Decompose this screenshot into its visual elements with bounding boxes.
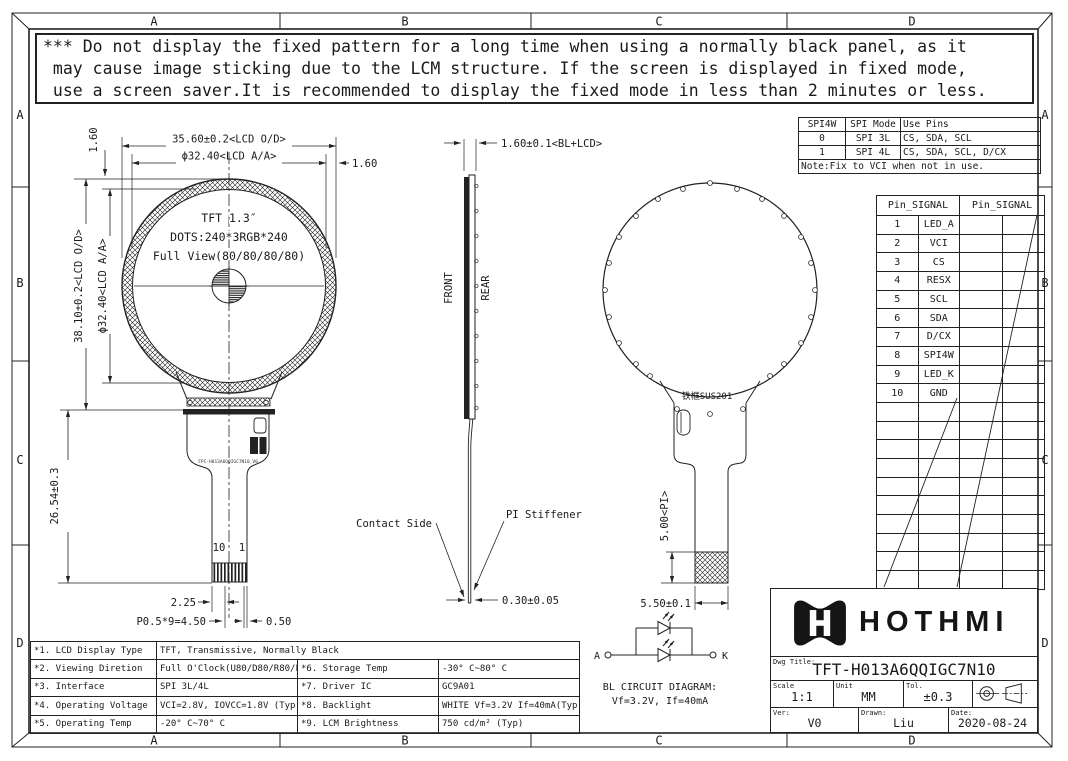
pi-stiffener-label: PI Stiffener: [506, 509, 582, 521]
spi-cell: CS, SDA, SCL: [901, 132, 1041, 146]
scale-label: Scale: [773, 682, 794, 690]
bl-circuit-diagram: A K BL CIRCUIT DIAGRAM: Vf=3.2V, If=40mA: [594, 612, 728, 707]
zone-top-d: D: [908, 15, 915, 29]
hothmi-logo-icon: [791, 598, 849, 648]
unit-label: Unit: [836, 682, 853, 690]
spi-cell: SPI 3L: [846, 132, 901, 146]
backlight-profile: [469, 175, 475, 419]
led-symbols: [658, 612, 674, 662]
pin-signal: GND: [918, 384, 960, 403]
panel-view-label: Full View(80/80/80/80): [153, 249, 305, 263]
fpc-component-outline: [254, 418, 266, 433]
empty-cell: [1002, 458, 1045, 477]
pin-signal: RESX: [918, 272, 960, 291]
empty-cell: [1002, 384, 1045, 403]
spec-value: TFT, Transmissive, Normally Black: [157, 642, 580, 660]
spec-label: *2. Viewing Diretion: [31, 660, 157, 678]
fpc-component-1: [250, 437, 258, 454]
empty-cell: [960, 533, 1003, 552]
empty-cell: [960, 440, 1003, 459]
spec-label: *9. LCM Brightness: [298, 715, 439, 733]
dwg-title-label: Dwg Title:: [773, 658, 815, 666]
empty-cell: [918, 496, 960, 515]
zone-bottom-a: A: [150, 734, 158, 748]
zone-left-b: B: [16, 276, 23, 290]
dim-thickness: 1.60±0.1<BL+LCD>: [501, 138, 602, 150]
empty-cell: [1002, 533, 1045, 552]
empty-cell: [960, 421, 1003, 440]
empty-cell: [960, 384, 1003, 403]
dim-pin-pitch: P0.5*9=4.50: [136, 616, 206, 628]
pin-10-label: 10: [213, 542, 226, 554]
spi-col-header: SPI Mode: [846, 118, 901, 132]
zone-bottom-c: C: [655, 734, 662, 748]
spec-value: WHITE Vf=3.2V If=40mA(Typ): [439, 697, 580, 715]
spec-value: GC9A01: [439, 678, 580, 696]
empty-cell: [877, 533, 919, 552]
spec-label: *8. Backlight: [298, 697, 439, 715]
dim-pi: 5.00<PI>: [659, 491, 671, 542]
empty-cell: [877, 496, 919, 515]
empty-cell: [877, 477, 919, 496]
scale-unit-tol-row: Scale 1:1 Unit MM Tol. ±0.3: [771, 681, 1037, 708]
dim-height-aa: ϕ32.40<LCD A/A>: [97, 239, 109, 334]
spi-note: Note:Fix to VCI when not in use.: [799, 160, 1041, 174]
spec-label: *1. LCD Display Type: [31, 642, 157, 660]
dim-fpc-thickness: 0.30±0.05: [502, 595, 559, 607]
pi-stiffener-hatch: [695, 552, 728, 583]
dim-width-od: 35.60±0.2<LCD O/D>: [172, 134, 286, 146]
empty-cell: [960, 234, 1003, 253]
empty-cell: [1002, 571, 1045, 590]
center-mark: [209, 266, 249, 306]
drawn-label: Drawn:: [861, 709, 886, 717]
panel-dots-label: DOTS:240*3RGB*240: [170, 230, 288, 244]
pin-signal: D/CX: [918, 328, 960, 347]
spec-value: VCI=2.8V, IOVCC=1.8V (Typ): [157, 697, 298, 715]
empty-cell: [918, 552, 960, 571]
zone-top-b: B: [401, 15, 408, 29]
pin-signal: LED_A: [918, 216, 960, 235]
spi-cell: SPI 4L: [846, 146, 901, 160]
contact-side-label: Contact Side: [356, 518, 432, 530]
date-cell: Date: 2020-08-24: [949, 708, 1036, 733]
empty-cell: [918, 515, 960, 534]
spec-value: -30° C~80° C: [439, 660, 580, 678]
front-view: 35.60±0.2<LCD O/D> ϕ32.40<LCD A/A> 1.60 …: [49, 127, 377, 628]
empty-cell: [1002, 402, 1045, 421]
empty-cell: [877, 458, 919, 477]
ver-drawn-date-row: Ver: V0 Drawn: Liu Date: 2020-08-24: [771, 708, 1037, 733]
tol-cell: Tol. ±0.3: [904, 681, 973, 707]
lcd-stack-profile: [464, 177, 469, 419]
empty-cell: [960, 290, 1003, 309]
panel-size-label: TFT 1.3″: [201, 211, 256, 225]
pin-1-label: 1: [239, 542, 245, 554]
rear-label: REAR: [480, 275, 492, 301]
brand-name: HOTHMI: [859, 606, 1009, 639]
pin-number: 4: [877, 272, 919, 291]
pin-signal: CS: [918, 253, 960, 272]
empty-cell: [960, 346, 1003, 365]
zone-right-d: D: [1041, 636, 1048, 650]
empty-cell: [877, 421, 919, 440]
third-angle-projection-icon: [973, 681, 1035, 706]
side-extension-lines: [464, 139, 476, 171]
spec-value: SPI 3L/4L: [157, 678, 298, 696]
empty-cell: [960, 496, 1003, 515]
logo-row: HOTHMI: [771, 589, 1037, 657]
dim-border-top: 1.60: [88, 127, 100, 152]
dim-pin-offset: 2.25: [171, 597, 196, 609]
empty-cell: [960, 309, 1003, 328]
empty-cell: [918, 477, 960, 496]
empty-cell: [960, 402, 1003, 421]
pin-number: 2: [877, 234, 919, 253]
spec-table: *1. LCD Display Type TFT, Transmissive, …: [30, 641, 580, 734]
empty-cell: [960, 272, 1003, 291]
empty-cell: [960, 328, 1003, 347]
engineering-drawing-page: A B C D A B C D A B C D A B C D: [0, 0, 1068, 761]
dim-border-right: 1.60: [352, 158, 377, 170]
fpc-tail-profile: [468, 419, 473, 603]
zone-top-c: C: [655, 15, 662, 29]
pin-number: 3: [877, 253, 919, 272]
scale-cell: Scale 1:1: [771, 681, 834, 707]
rear-view: 铁框SUS201 5.00<PI> 5.50±0.1: [603, 181, 818, 610]
empty-cell: [1002, 477, 1045, 496]
empty-cell: [1002, 515, 1045, 534]
pin-number: 1: [877, 216, 919, 235]
pin-signal-table: Pin_SIGNAL Pin_SIGNAL 1LED_A 2VCI 3CS 4R…: [876, 195, 1038, 588]
projection-cell: [973, 681, 1036, 707]
spi-col-header: Use Pins: [901, 118, 1041, 132]
empty-cell: [1002, 365, 1045, 384]
empty-cell: [1002, 272, 1045, 291]
fpc-outline-left: [187, 415, 212, 564]
spec-value: -20° C~70° C: [157, 715, 298, 733]
front-label: FRONT: [443, 272, 455, 304]
empty-cell: [960, 477, 1003, 496]
version-cell: Ver: V0: [771, 708, 859, 733]
cathode-terminal: [710, 652, 716, 658]
tol-label: Tol.: [906, 682, 923, 690]
frame-tab-notches: [603, 181, 818, 417]
date-label: Date:: [951, 709, 972, 717]
zone-top-a: A: [150, 15, 158, 29]
tab-slot: [677, 410, 690, 435]
empty-cell: [1002, 234, 1045, 253]
pin-number: 7: [877, 328, 919, 347]
empty-cell: [1002, 290, 1045, 309]
dim-width-aa: ϕ32.40<LCD A/A>: [182, 151, 277, 163]
zone-bottom-b: B: [401, 734, 408, 748]
empty-cell: [918, 402, 960, 421]
fpc-part-label: FPC-H013A6QQIGC7N10_V0: [198, 459, 258, 465]
version-label: Ver:: [773, 709, 790, 717]
spec-label: *7. Driver IC: [298, 678, 439, 696]
contact-side-leader: [436, 523, 464, 597]
pin-number: 5: [877, 290, 919, 309]
side-view: 1.60±0.1<BL+LCD> FRONT REAR Contact Side…: [356, 138, 602, 607]
spi-cell: CS, SDA, SCL, D/CX: [901, 146, 1041, 160]
pin-signal: VCI: [918, 234, 960, 253]
warning-line-1: *** Do not display the fixed pattern for…: [43, 36, 1026, 58]
bl-caption-title: BL CIRCUIT DIAGRAM:: [603, 682, 717, 693]
dim-pin-width: 0.50: [266, 616, 291, 628]
warning-line-3: use a screen saver.It is recommended to …: [43, 80, 1026, 102]
empty-cell: [1002, 552, 1045, 571]
pin-table-header: Pin_SIGNAL: [877, 196, 960, 216]
empty-cell: [1002, 216, 1045, 235]
bl-caption-spec: Vf=3.2V, If=40mA: [612, 696, 708, 707]
pin-signal: SPI4W: [918, 346, 960, 365]
empty-cell: [918, 571, 960, 590]
fpc-component-2: [260, 437, 267, 454]
empty-cell: [1002, 253, 1045, 272]
pin-signal: LED_K: [918, 365, 960, 384]
zone-left-a: A: [16, 108, 24, 122]
empty-cell: [877, 402, 919, 421]
spec-value: 750 cd/m² (Typ): [439, 715, 580, 733]
empty-cell: [960, 365, 1003, 384]
empty-cell: [960, 216, 1003, 235]
fpc-bond-bar: [183, 409, 275, 415]
dwg-title-row: Dwg Title: TFT-H013A6QQIGC7N10: [771, 657, 1037, 681]
empty-cell: [1002, 328, 1045, 347]
empty-cell: [960, 571, 1003, 590]
frame-material-label: 铁框SUS201: [682, 390, 733, 402]
empty-cell: [960, 515, 1003, 534]
empty-cell: [918, 440, 960, 459]
empty-cell: [877, 552, 919, 571]
spec-label: *4. Operating Voltage: [31, 697, 157, 715]
fpc-outline-right: [247, 415, 269, 564]
pin-signal: SDA: [918, 309, 960, 328]
drawn-cell: Drawn: Liu: [859, 708, 949, 733]
spec-label: *6. Storage Temp: [298, 660, 439, 678]
empty-cell: [877, 515, 919, 534]
empty-cell: [877, 440, 919, 459]
spec-value: Full O'Clock(U80/D80/R80/L80): [157, 660, 298, 678]
pin-signal: SCL: [918, 290, 960, 309]
pin-table-header: Pin_SIGNAL: [960, 196, 1045, 216]
title-block: HOTHMI Dwg Title: TFT-H013A6QQIGC7N10 Sc…: [770, 588, 1038, 733]
empty-cell: [960, 253, 1003, 272]
zone-left-c: C: [16, 453, 23, 467]
empty-cell: [1002, 421, 1045, 440]
dim-fpc-width: 5.50±0.1: [640, 598, 691, 610]
spi-mode-table: SPI4W SPI Mode Use Pins 0 SPI 3L CS, SDA…: [798, 117, 1041, 174]
connector-pins: [212, 563, 247, 582]
dim-height-od: 38.10±0.2<LCD O/D>: [73, 229, 85, 343]
empty-cell: [918, 458, 960, 477]
spec-label: *3. Interface: [31, 678, 157, 696]
dim-fpc-length: 26.54±0.3: [49, 468, 61, 525]
empty-cell: [960, 552, 1003, 571]
zone-right-a: A: [1041, 108, 1049, 122]
empty-cell: [1002, 440, 1045, 459]
empty-cell: [1002, 309, 1045, 328]
zone-bottom-d: D: [908, 734, 915, 748]
warning-line-2: may cause image sticking due to the LCM …: [43, 58, 1026, 80]
empty-cell: [877, 571, 919, 590]
unit-cell: Unit MM: [834, 681, 904, 707]
spec-label: *5. Operating Temp: [31, 715, 157, 733]
spi-col-header: SPI4W: [799, 118, 846, 132]
spi-cell: 1: [799, 146, 846, 160]
empty-cell: [1002, 346, 1045, 365]
anode-label: A: [594, 651, 600, 662]
bezel-bottom-bar: [187, 398, 270, 406]
pin-number: 10: [877, 384, 919, 403]
empty-cell: [918, 421, 960, 440]
pin-number: 6: [877, 309, 919, 328]
spi-cell: 0: [799, 132, 846, 146]
warning-note: *** Do not display the fixed pattern for…: [35, 33, 1034, 104]
pin-number: 8: [877, 346, 919, 365]
empty-cell: [960, 458, 1003, 477]
anode-terminal: [605, 652, 611, 658]
empty-cell: [1002, 496, 1045, 515]
zone-left-d: D: [16, 636, 23, 650]
pi-stiffener-leader: [474, 521, 504, 590]
empty-cell: [918, 533, 960, 552]
pin-number: 9: [877, 365, 919, 384]
cathode-label: K: [722, 651, 728, 662]
